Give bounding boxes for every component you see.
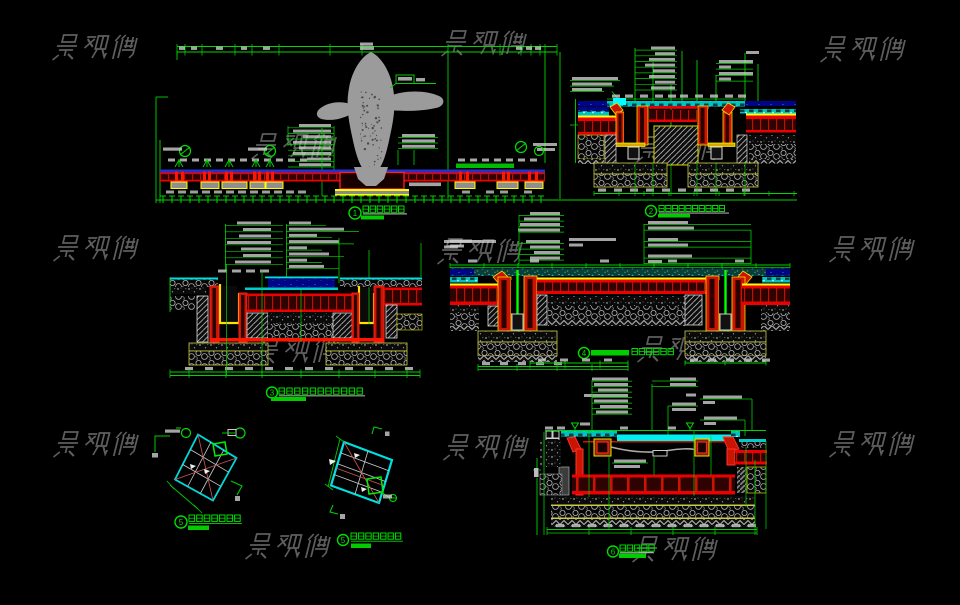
svg-text:3: 3 xyxy=(270,389,275,398)
svg-text:5: 5 xyxy=(341,536,346,545)
svg-text:2: 2 xyxy=(649,207,654,216)
svg-text:5: 5 xyxy=(179,518,184,527)
svg-text:6: 6 xyxy=(611,548,616,557)
svg-text:4: 4 xyxy=(582,349,587,358)
svg-text:1: 1 xyxy=(353,209,358,218)
